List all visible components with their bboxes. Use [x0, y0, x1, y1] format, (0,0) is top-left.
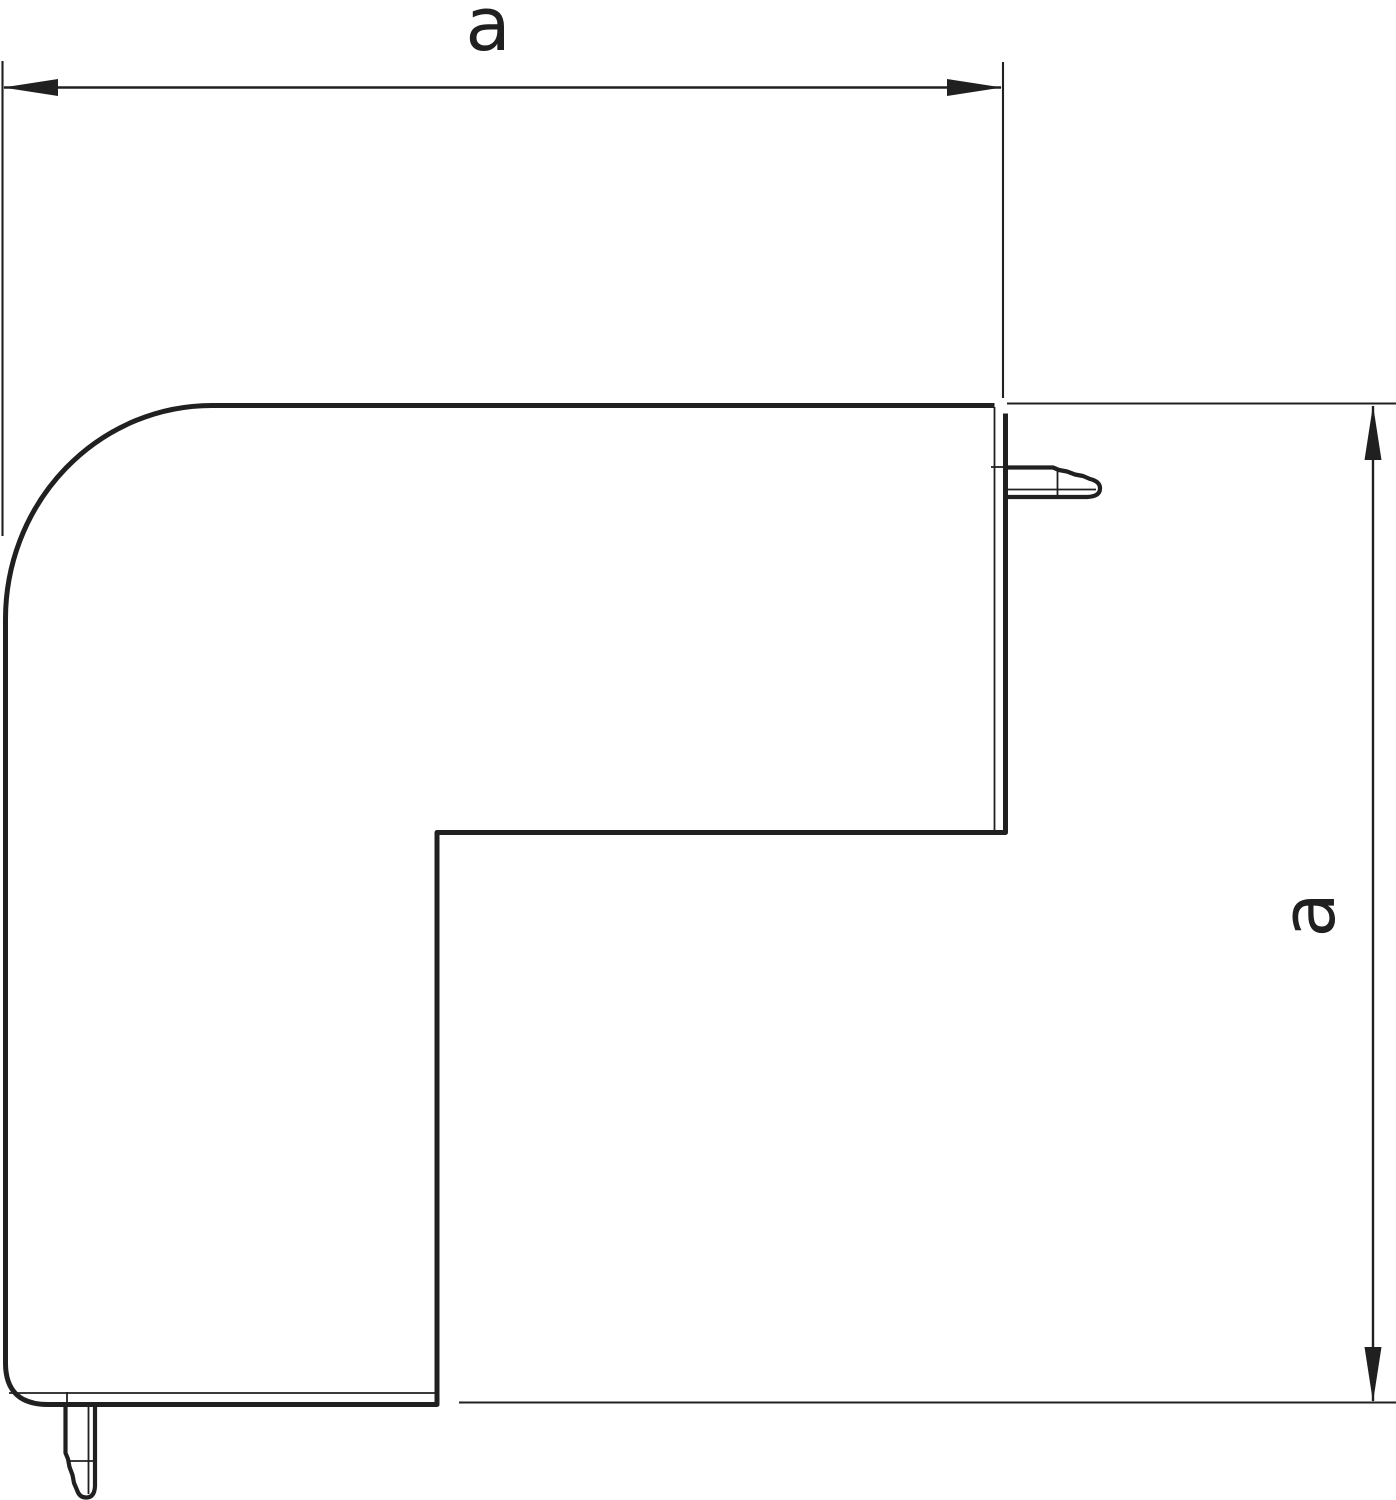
height-dim-label: a	[1266, 892, 1352, 937]
width-dim-arrow-right	[947, 79, 1002, 96]
width-dim-arrow-left	[3, 79, 58, 96]
height-dim-arrow-top	[1365, 405, 1382, 460]
height-dim-arrow-bottom	[1365, 1347, 1382, 1402]
technical-drawing-page: a a	[0, 0, 1396, 1500]
right-coupling-pin	[1006, 468, 1100, 498]
part-outline	[6, 406, 1006, 1405]
flat-angle-drawing-canvas: a a	[0, 0, 1396, 1500]
width-dim-label: a	[465, 0, 510, 68]
bottom-coupling-pin	[66, 1406, 96, 1498]
